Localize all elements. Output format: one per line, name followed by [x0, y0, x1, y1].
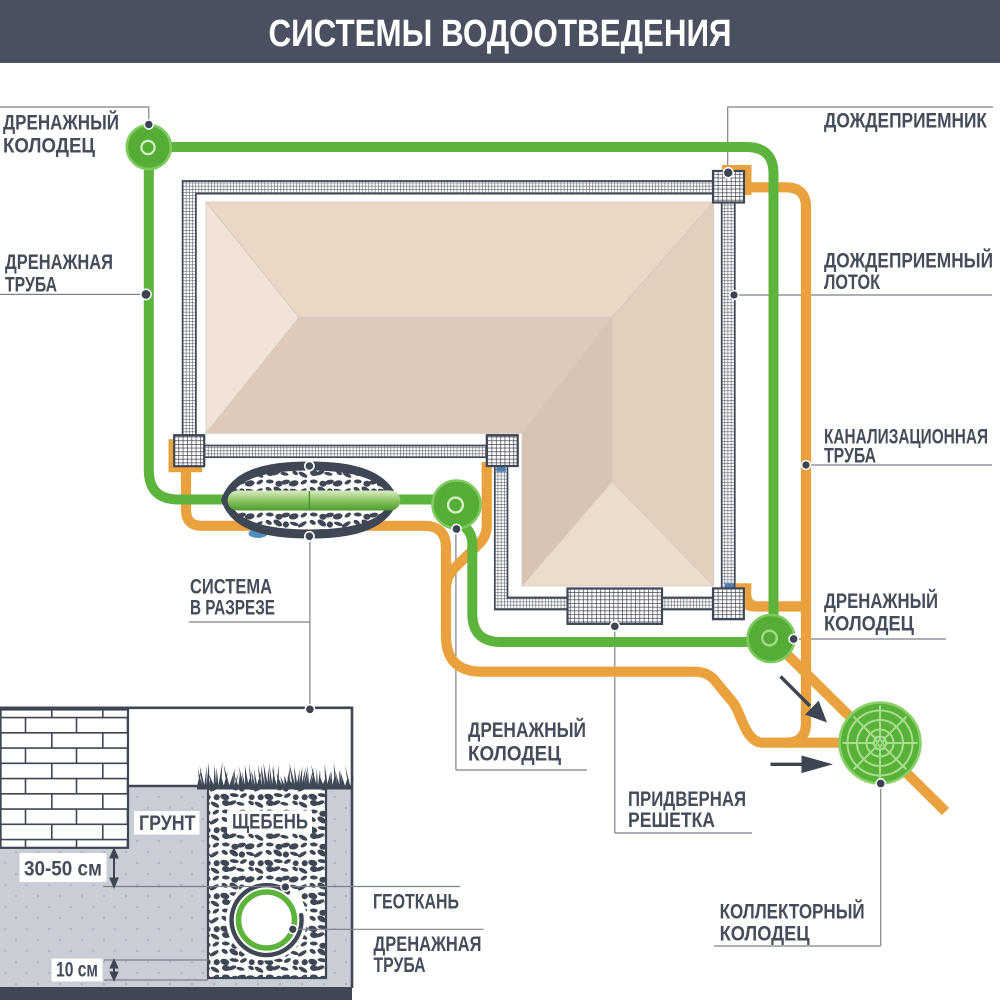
svg-text:ДРЕНАЖНАЯ: ДРЕНАЖНАЯ: [5, 251, 113, 274]
svg-text:КОЛОДЕЦ: КОЛОДЕЦ: [824, 613, 915, 636]
svg-text:ГЕОТКАНЬ: ГЕОТКАНЬ: [373, 891, 459, 914]
svg-text:ДРЕНАЖНЫЙ: ДРЕНАЖНЫЙ: [468, 718, 586, 742]
svg-text:30-50 см: 30-50 см: [24, 858, 102, 881]
svg-text:10 см: 10 см: [56, 959, 98, 982]
svg-text:В РАЗРЕЗЕ: В РАЗРЕЗЕ: [190, 597, 275, 620]
svg-text:КОЛЛЕКТОРНЫЙ: КОЛЛЕКТОРНЫЙ: [720, 900, 865, 924]
svg-text:СИСТЕМЫ ВОДООТВЕДЕНИЯ: СИСТЕМЫ ВОДООТВЕДЕНИЯ: [269, 13, 732, 55]
svg-text:ДРЕНАЖНАЯ: ДРЕНАЖНАЯ: [374, 933, 482, 956]
svg-text:КОЛОДЕЦ: КОЛОДЕЦ: [720, 923, 811, 946]
svg-text:ЛОТОК: ЛОТОК: [824, 271, 880, 294]
svg-text:ДОЖДЕПРИЕМНЫЙ: ДОЖДЕПРИЕМНЫЙ: [824, 249, 993, 273]
svg-text:ДОЖДЕПРИЕМНИК: ДОЖДЕПРИЕМНИК: [824, 110, 987, 133]
svg-text:ТРУБА: ТРУБА: [374, 954, 426, 977]
svg-text:СИСТЕМА: СИСТЕМА: [190, 576, 272, 599]
svg-text:КОЛОДЕЦ: КОЛОДЕЦ: [3, 135, 96, 158]
svg-text:ЩЕБЕНЬ: ЩЕБЕНЬ: [232, 811, 308, 834]
svg-text:ДРЕНАЖНЫЙ: ДРЕНАЖНЫЙ: [3, 111, 119, 135]
svg-text:ТРУБА: ТРУБА: [5, 274, 57, 297]
svg-text:КОЛОДЕЦ: КОЛОДЕЦ: [468, 743, 562, 766]
svg-text:ТРУБА: ТРУБА: [824, 445, 876, 468]
svg-text:ДРЕНАЖНЫЙ: ДРЕНАЖНЫЙ: [824, 589, 938, 613]
svg-text:РЕШЕТКА: РЕШЕТКА: [628, 809, 715, 832]
svg-text:ГРУНТ: ГРУНТ: [139, 812, 196, 835]
svg-text:ПРИДВЕРНАЯ: ПРИДВЕРНАЯ: [628, 788, 746, 811]
